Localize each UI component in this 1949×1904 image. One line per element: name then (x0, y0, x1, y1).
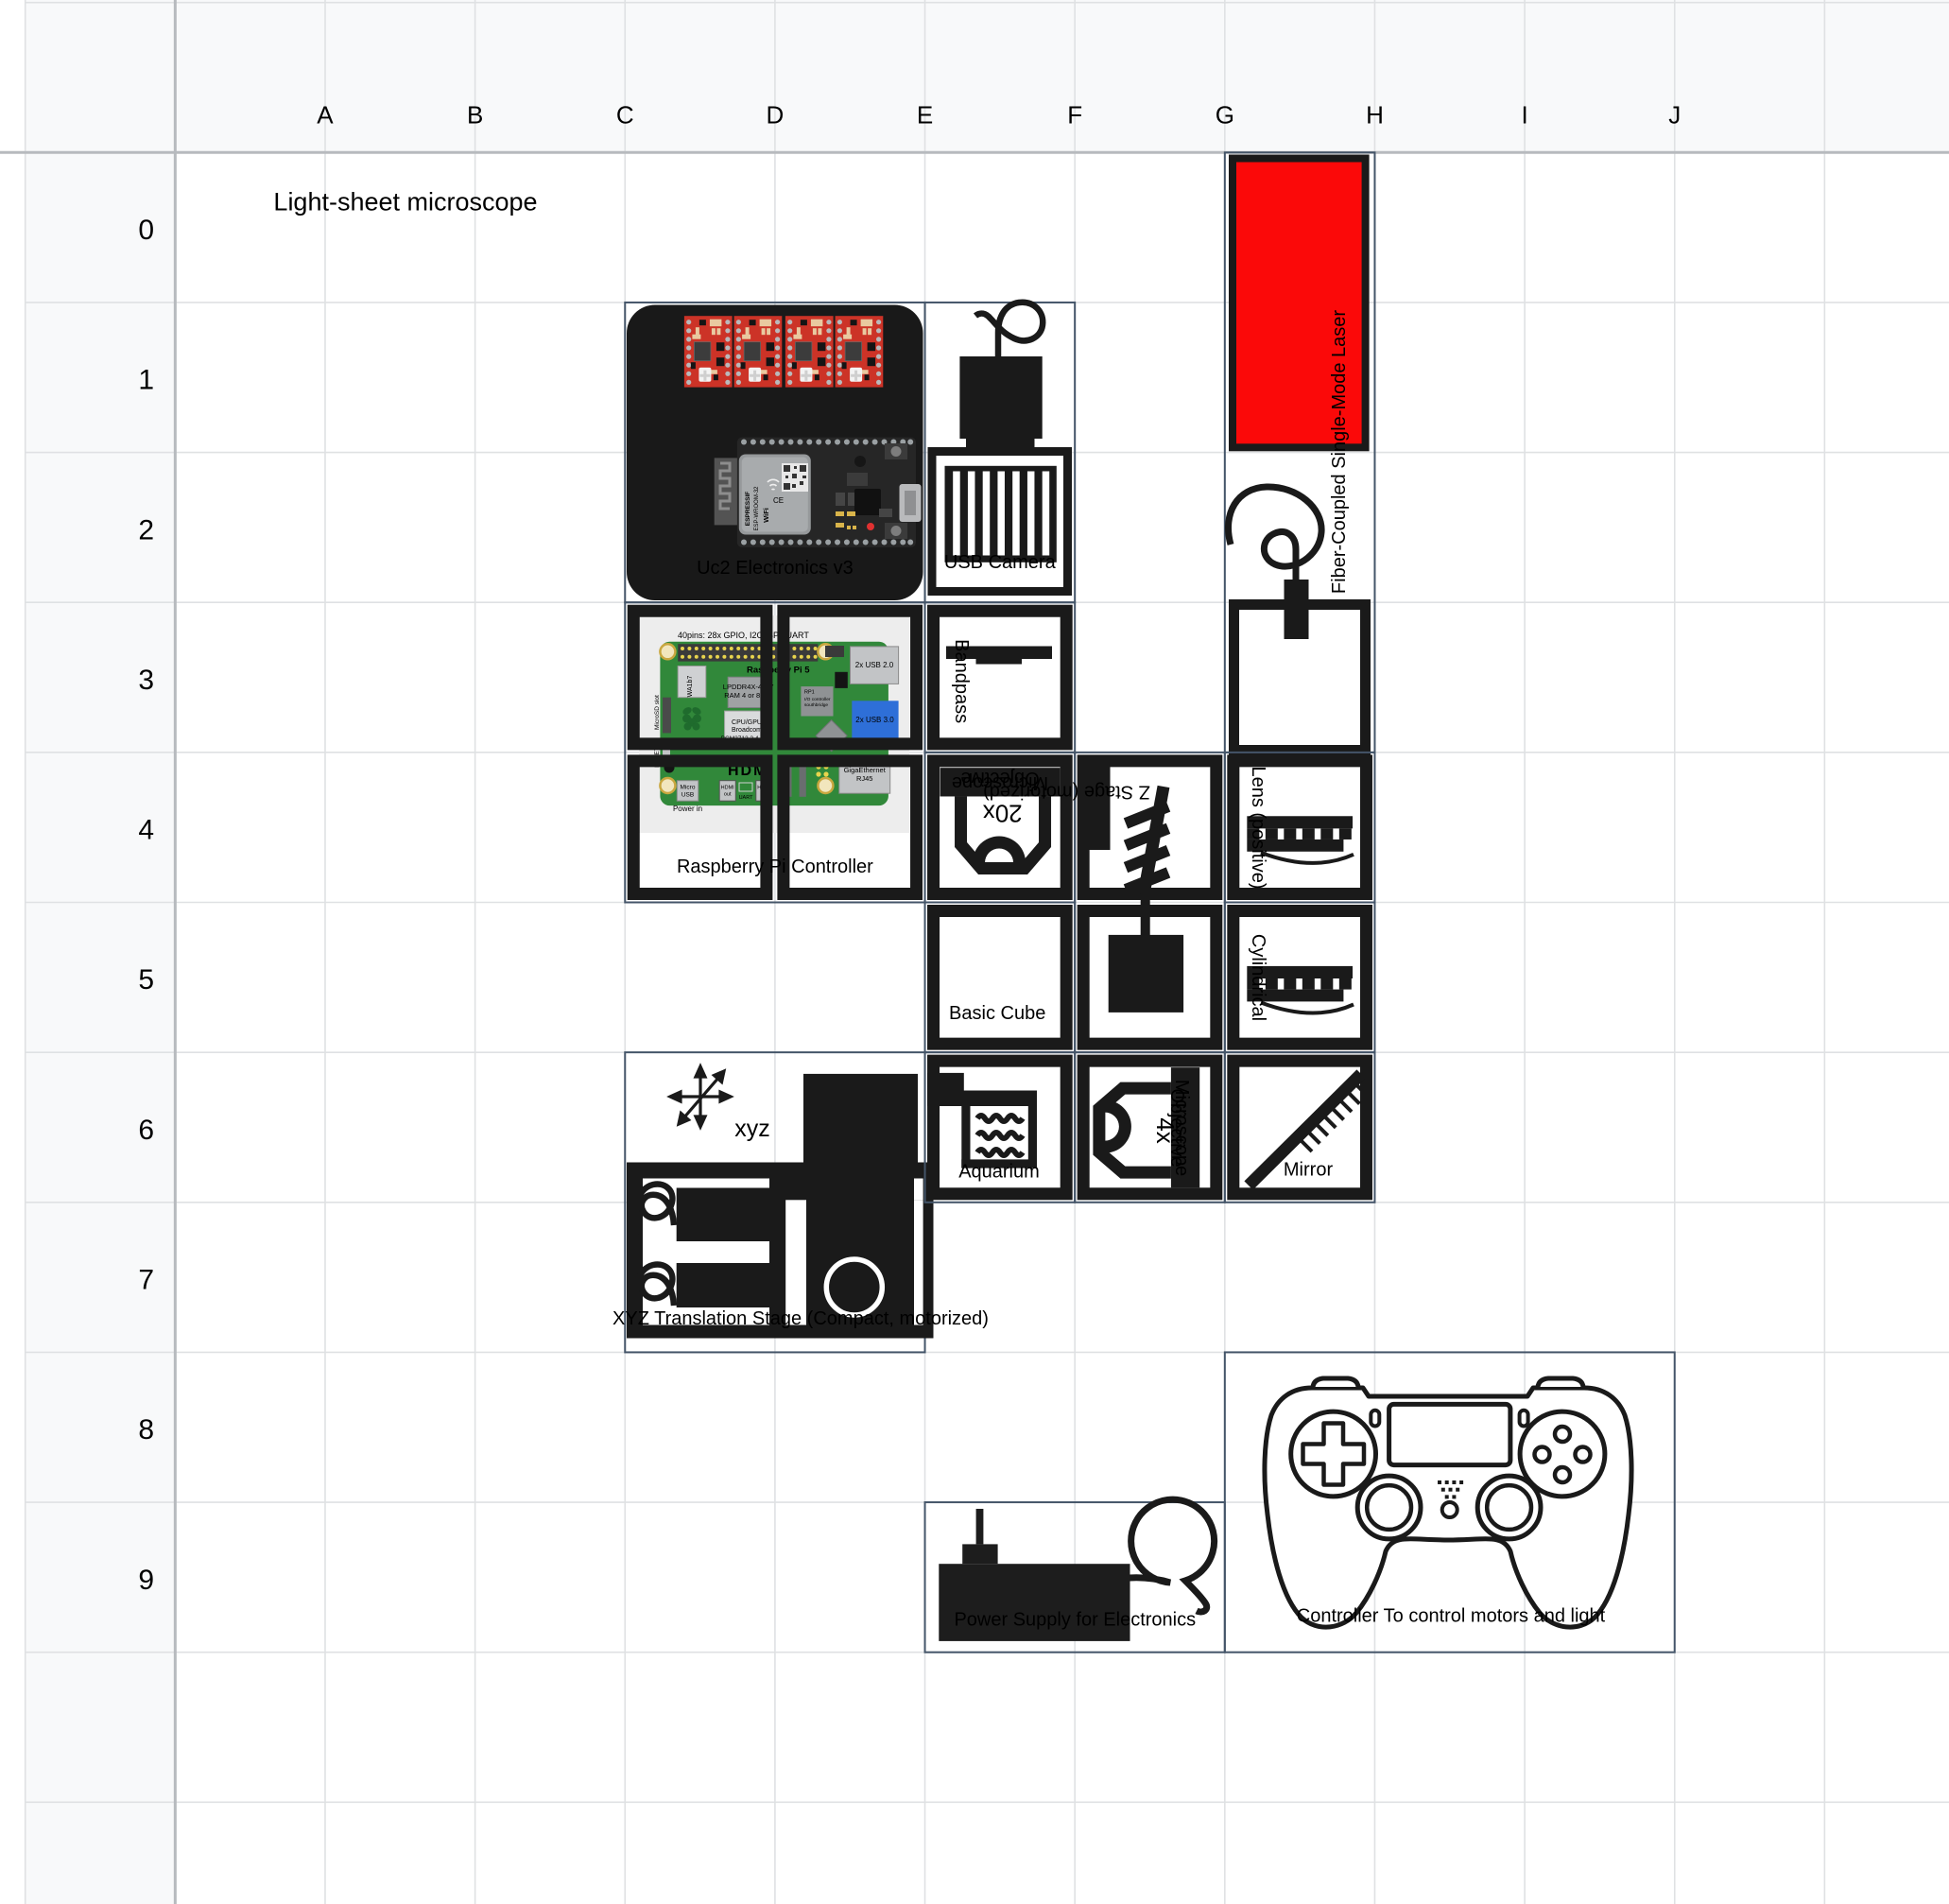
svg-text:G: G (1216, 101, 1234, 130)
svg-text:J: J (1668, 101, 1681, 130)
svg-text:RJ45: RJ45 (856, 774, 873, 783)
svg-text:4: 4 (138, 815, 154, 846)
svg-text:Controller To control motors a: Controller To control motors and light (1297, 1606, 1606, 1627)
svg-text:1: 1 (138, 365, 154, 396)
svg-text:40pins: 28x GPIO, I2C, SPI, UA: 40pins: 28x GPIO, I2C, SPI, UART (678, 631, 809, 640)
svg-text:Aquarium: Aquarium (958, 1162, 1040, 1183)
svg-text:B: B (467, 101, 483, 130)
svg-text:Objective: Objective (1166, 1088, 1187, 1167)
svg-text:A: A (317, 101, 334, 130)
svg-text:CE: CE (773, 496, 784, 505)
svg-text:6: 6 (138, 1115, 154, 1146)
svg-text:I: I (1521, 101, 1527, 130)
svg-text:7: 7 (138, 1265, 154, 1296)
svg-text:Lens (positive): Lens (positive) (1248, 766, 1268, 889)
svg-text:ESPRESSIF: ESPRESSIF (745, 492, 751, 527)
svg-text:H: H (1366, 101, 1384, 130)
svg-text:USB Camera: USB Camera (944, 552, 1057, 573)
svg-text:2x USB 2.0: 2x USB 2.0 (855, 661, 894, 669)
svg-text:Mirror: Mirror (1284, 1160, 1334, 1181)
svg-text:southbridge: southbridge (804, 702, 828, 708)
svg-text:USB: USB (681, 792, 694, 799)
svg-text:2x USB 3.0: 2x USB 3.0 (855, 716, 894, 724)
svg-text:Power in: Power in (673, 805, 702, 813)
svg-text:CPU/GPU: CPU/GPU (732, 719, 762, 726)
svg-text:xyz: xyz (734, 1116, 770, 1142)
svg-text:E: E (917, 101, 933, 130)
svg-text:Fiber-Coupled Single-Mode Lase: Fiber-Coupled Single-Mode Laser (1329, 310, 1350, 594)
svg-text:3: 3 (138, 665, 154, 696)
svg-text:Cylindrical: Cylindrical (1248, 934, 1268, 1021)
svg-text:HDMI: HDMI (721, 786, 735, 791)
svg-text:F: F (1067, 101, 1082, 130)
svg-text:5: 5 (138, 964, 154, 995)
svg-text:Power Supply for Electronics: Power Supply for Electronics (954, 1610, 1196, 1631)
svg-text:MicroSD slot: MicroSD slot (654, 695, 661, 730)
svg-text:Basic Cube: Basic Cube (949, 1003, 1045, 1024)
svg-text:RP1: RP1 (804, 690, 815, 696)
svg-text:Bandpass: Bandpass (951, 639, 972, 723)
svg-text:C: C (616, 101, 634, 130)
svg-text:Uc2 Electronics v3: Uc2 Electronics v3 (697, 558, 854, 579)
svg-text:Raspberry Pi Controller: Raspberry Pi Controller (677, 857, 873, 877)
svg-text:UART: UART (739, 795, 754, 801)
svg-text:Micro: Micro (681, 785, 696, 791)
svg-text:9: 9 (138, 1565, 154, 1596)
svg-text:out: out (724, 792, 732, 798)
svg-text:ESP-WROOM-32: ESP-WROOM-32 (754, 486, 760, 531)
svg-text:0: 0 (138, 215, 154, 246)
svg-text:2: 2 (138, 514, 154, 545)
svg-text:20x: 20x (983, 800, 1023, 828)
svg-text:WA1b7: WA1b7 (687, 676, 694, 698)
svg-text:Z Stage (motorized): Z Stage (motorized) (983, 782, 1150, 803)
svg-text:Light-sheet microscope: Light-sheet microscope (273, 188, 537, 216)
svg-text:XYZ Translation Stage (Compact: XYZ Translation Stage (Compact, motorize… (612, 1308, 989, 1329)
svg-text:Broadcom: Broadcom (732, 727, 762, 734)
svg-text:I/O controller: I/O controller (804, 697, 831, 702)
svg-text:WiFi: WiFi (762, 508, 770, 523)
svg-text:8: 8 (138, 1414, 154, 1445)
svg-text:D: D (767, 101, 785, 130)
